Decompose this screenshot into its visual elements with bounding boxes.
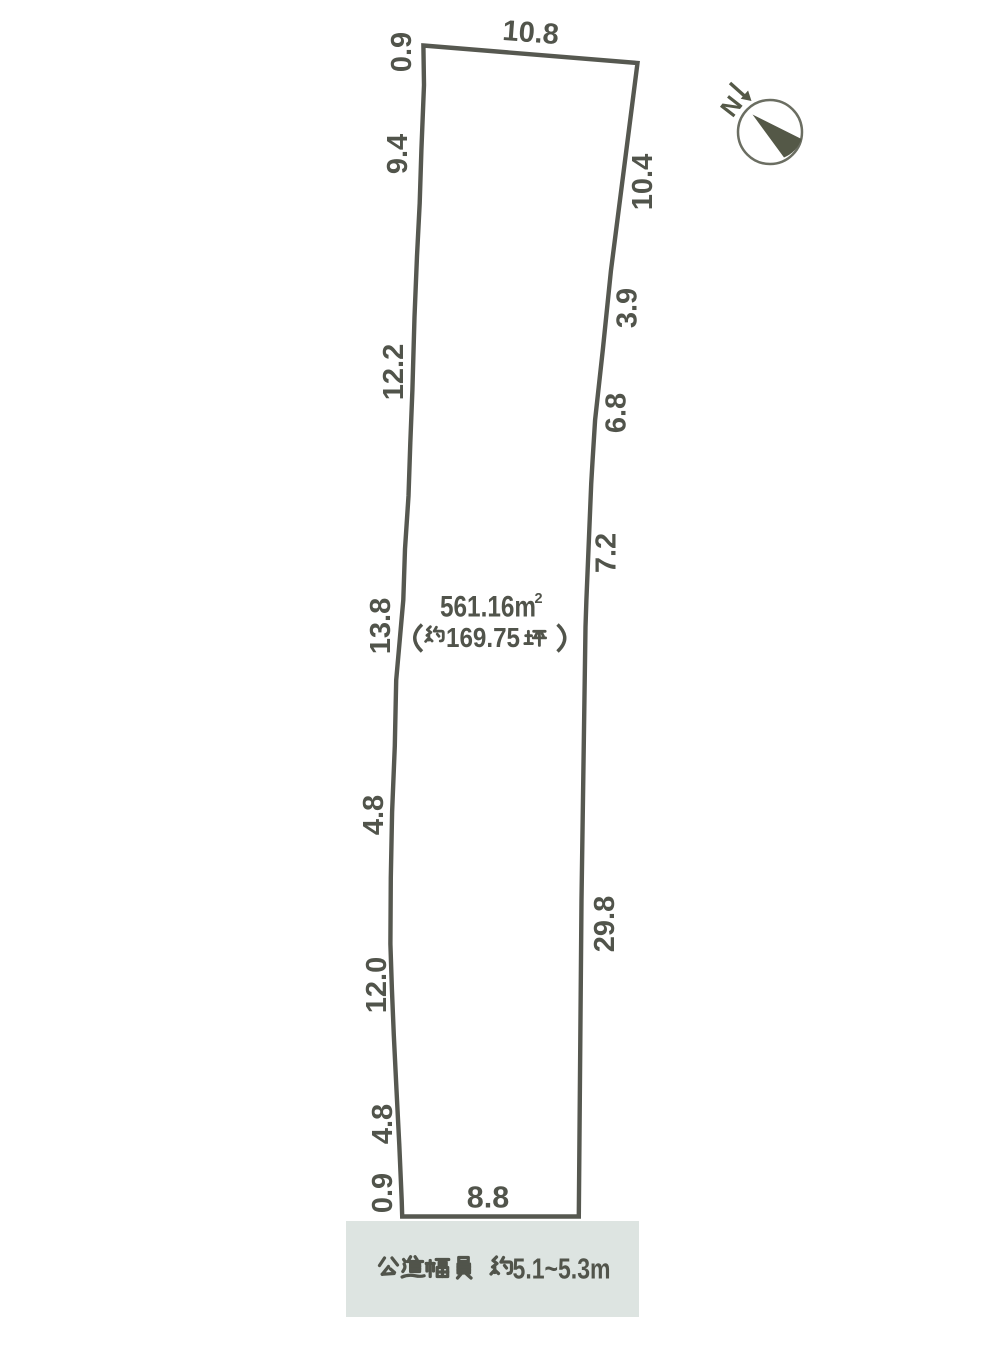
svg-text:7.2: 7.2 bbox=[591, 533, 623, 573]
svg-text:29.8: 29.8 bbox=[589, 896, 621, 952]
svg-text:12.0: 12.0 bbox=[361, 957, 393, 1013]
svg-text:2: 2 bbox=[535, 591, 543, 607]
svg-text:0.9: 0.9 bbox=[367, 1173, 399, 1213]
svg-text:10.4: 10.4 bbox=[627, 154, 659, 210]
svg-text:9.4: 9.4 bbox=[382, 134, 414, 174]
svg-text:561.16m: 561.16m bbox=[440, 591, 536, 624]
svg-text:5.1~5.3m: 5.1~5.3m bbox=[513, 1254, 611, 1286]
svg-text:4.8: 4.8 bbox=[367, 1104, 399, 1144]
svg-text:4.8: 4.8 bbox=[358, 795, 390, 835]
svg-text:10.8: 10.8 bbox=[501, 15, 560, 51]
svg-text:169.75: 169.75 bbox=[446, 622, 520, 653]
svg-text:13.8: 13.8 bbox=[365, 598, 397, 654]
svg-text:3.9: 3.9 bbox=[612, 288, 644, 328]
svg-text:8.8: 8.8 bbox=[467, 1181, 509, 1215]
svg-text:12.2: 12.2 bbox=[378, 344, 410, 400]
svg-text:6.8: 6.8 bbox=[601, 393, 633, 433]
svg-text:0.9: 0.9 bbox=[386, 32, 418, 72]
